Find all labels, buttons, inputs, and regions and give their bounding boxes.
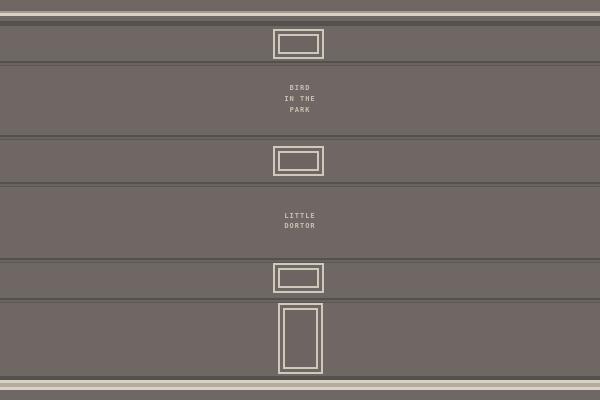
door-panel: [283, 308, 318, 369]
panel-groove: [0, 182, 600, 187]
bottom-trim-cream-line-2: [0, 387, 600, 390]
window-pane: [278, 34, 319, 54]
window-pane: [278, 151, 319, 171]
window-frame-middle: [273, 146, 324, 176]
sign-line: LITTLE: [0, 211, 600, 221]
panel-groove: [0, 61, 600, 66]
sign-line: BIRD: [0, 83, 600, 94]
top-trim-cream-line: [0, 13, 600, 16]
building-facade: BIRD IN THE PARK LITTLE DORTOR: [0, 0, 600, 400]
panel-groove: [0, 135, 600, 140]
door[interactable]: [278, 303, 323, 374]
sign-line: PARK: [0, 105, 600, 116]
window-pane: [278, 268, 319, 288]
top-dark-stripe: [0, 21, 600, 26]
window-frame-bottom: [273, 263, 324, 293]
sign-bird-in-the-park: BIRD IN THE PARK: [0, 83, 600, 116]
sign-line: IN THE: [0, 94, 600, 105]
window-frame-top: [273, 29, 324, 59]
sign-little-dortor: LITTLE DORTOR: [0, 211, 600, 231]
sign-line: DORTOR: [0, 221, 600, 231]
